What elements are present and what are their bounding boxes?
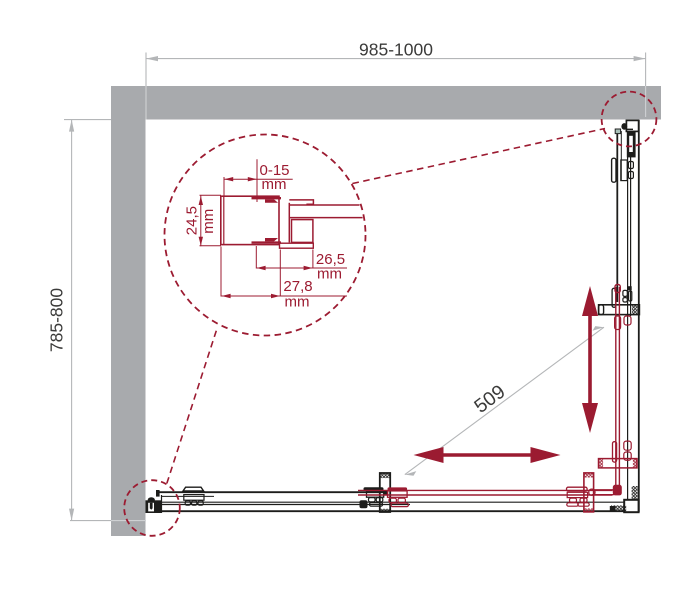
svg-text:mm: mm	[285, 294, 310, 311]
svg-text:mm: mm	[262, 176, 287, 193]
svg-text:24,5: 24,5	[183, 206, 200, 235]
svg-text:mm: mm	[317, 266, 342, 283]
svg-text:985-1000: 985-1000	[359, 40, 433, 60]
svg-text:785-800: 785-800	[47, 288, 67, 352]
svg-text:mm: mm	[200, 209, 217, 234]
